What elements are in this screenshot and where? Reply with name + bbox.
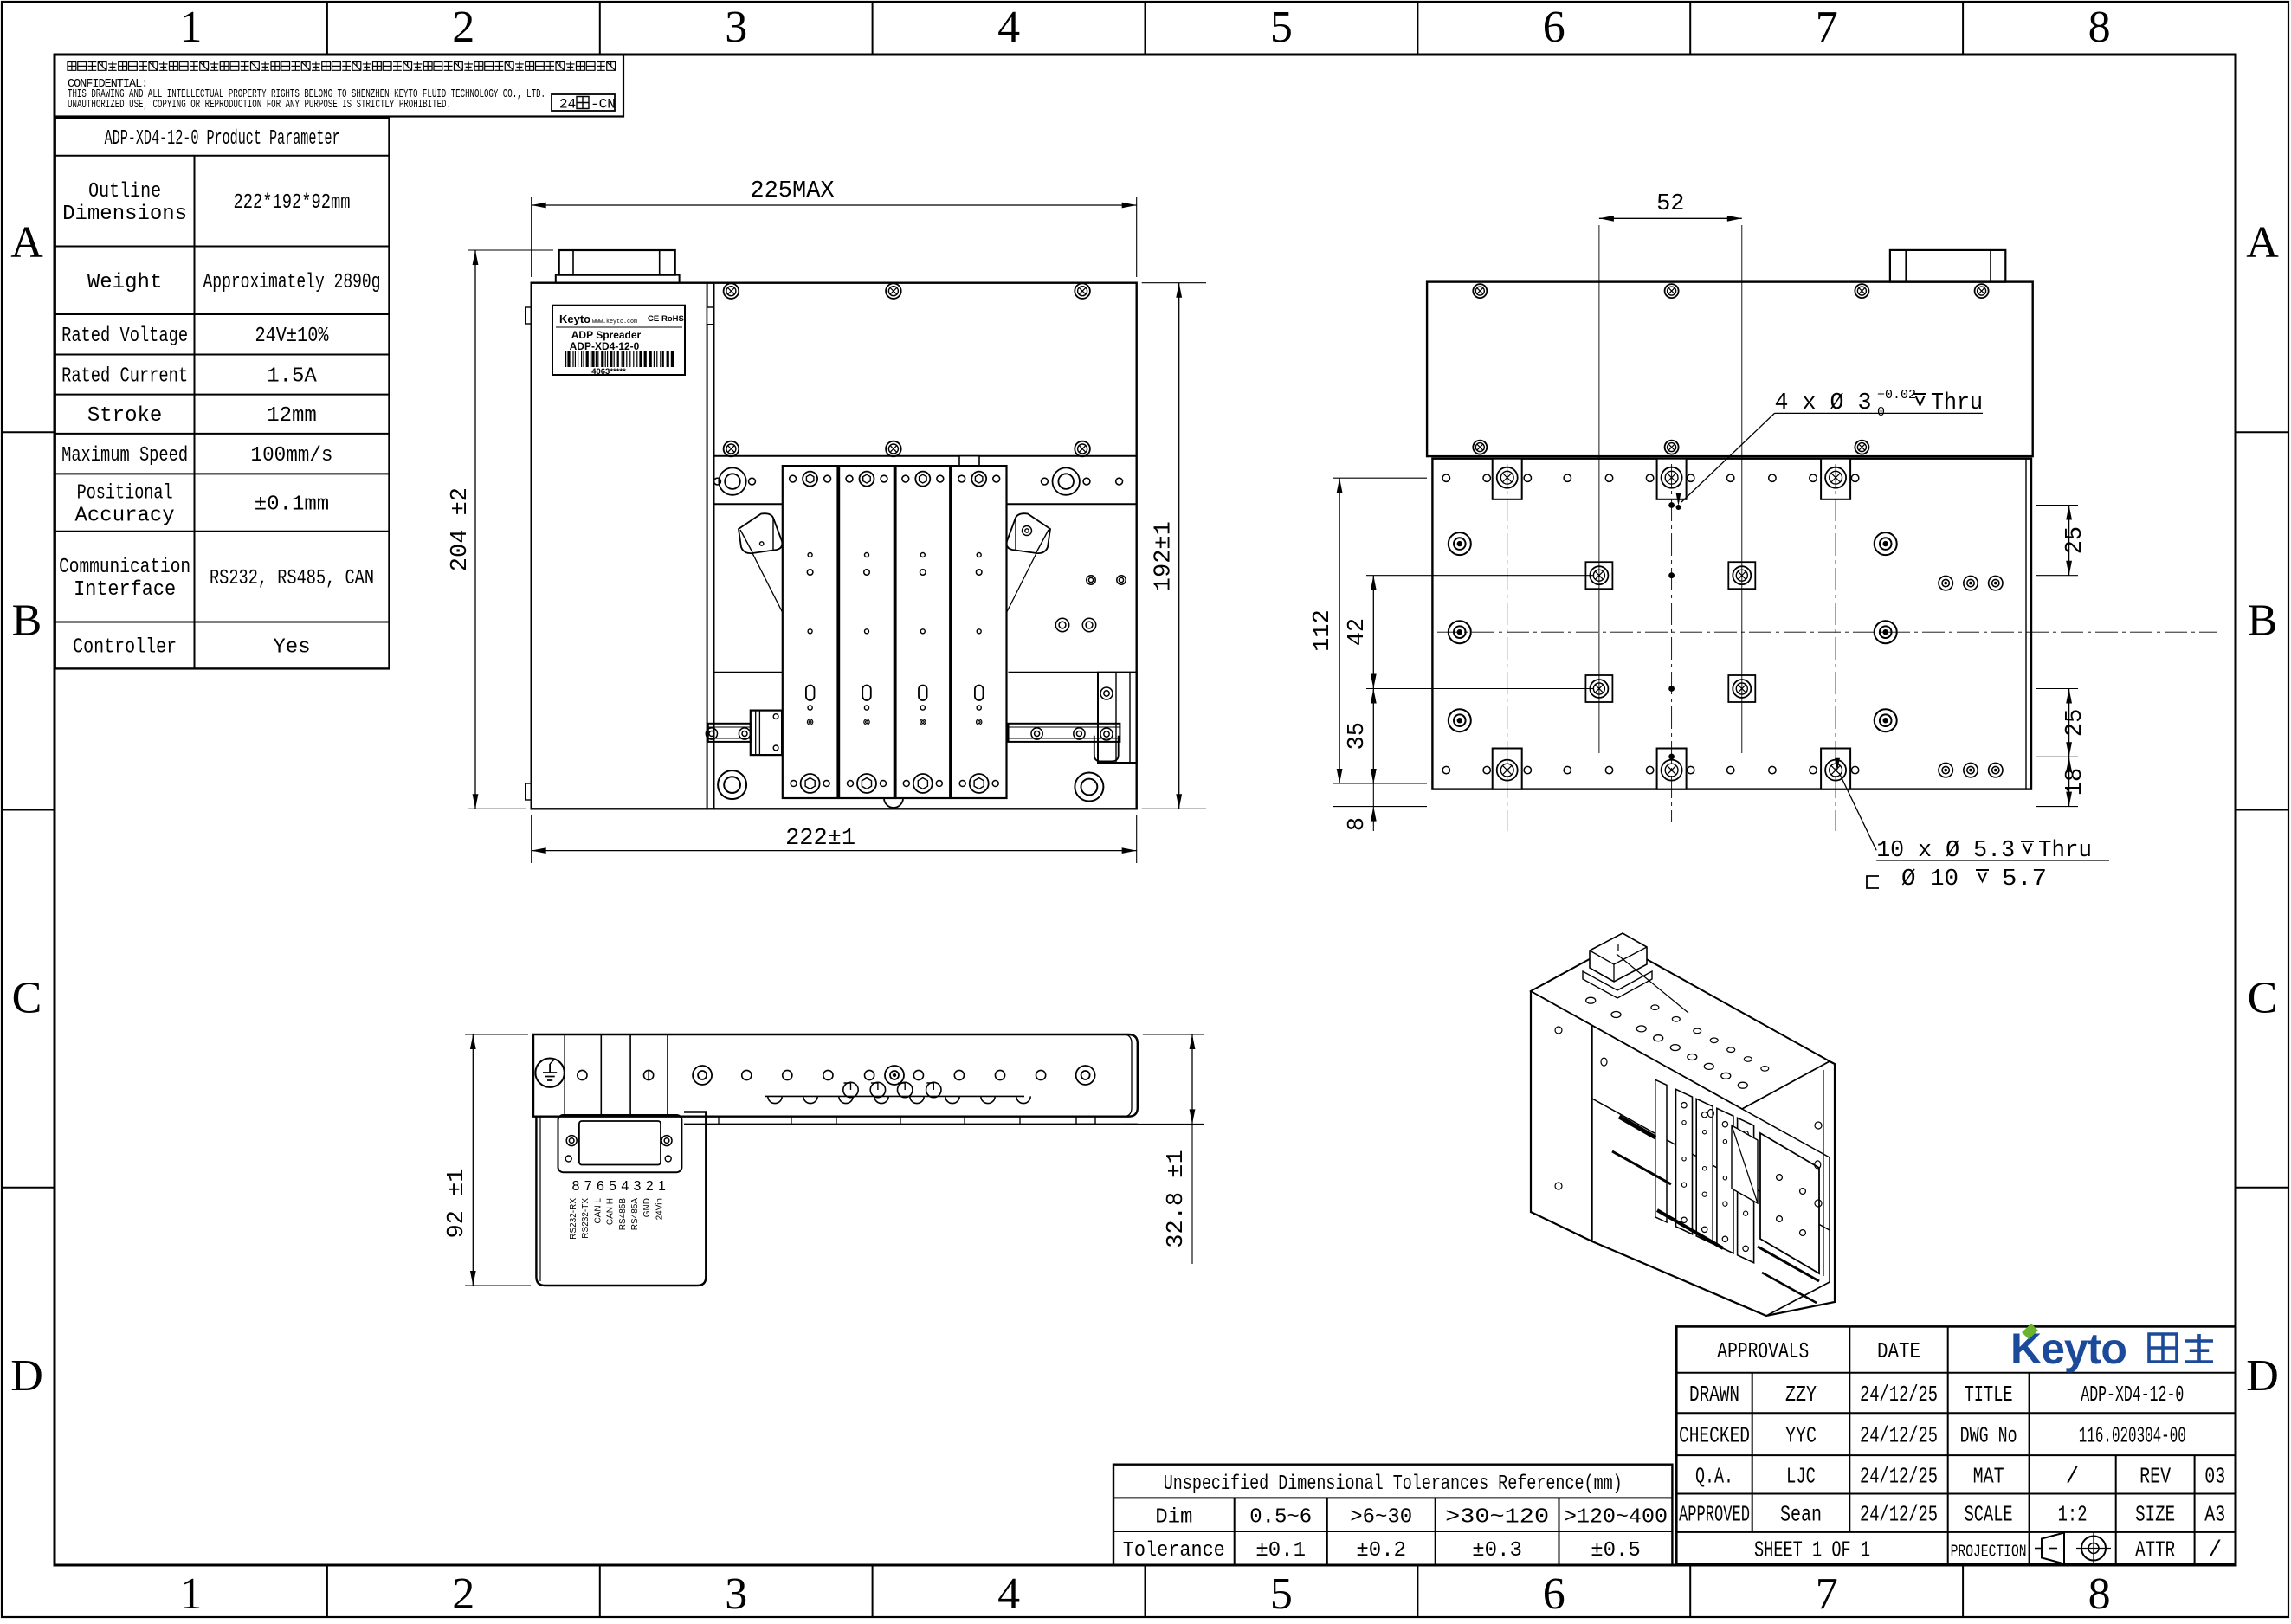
svg-text:52: 52 — [1656, 191, 1684, 217]
svg-text:6: 6 — [1543, 3, 1565, 52]
svg-text:24/12/25: 24/12/25 — [1860, 1382, 1938, 1408]
svg-text:/: / — [2208, 1537, 2222, 1563]
svg-text:Maximum Speed: Maximum Speed — [61, 444, 188, 467]
svg-text:CE: CE — [648, 314, 659, 324]
svg-text:3: 3 — [725, 3, 747, 52]
svg-text:4: 4 — [621, 1179, 629, 1194]
svg-text:-CN: -CN — [590, 97, 616, 113]
svg-text:DWG No: DWG No — [1960, 1423, 2017, 1449]
svg-text:ATTR: ATTR — [2135, 1537, 2175, 1563]
svg-text:92 ±1: 92 ±1 — [444, 1168, 470, 1238]
svg-text:0: 0 — [1877, 405, 1885, 420]
svg-text:24Vin: 24Vin — [655, 1198, 664, 1220]
svg-text:Rated Voltage: Rated Voltage — [61, 325, 188, 348]
svg-text:1:2: 1:2 — [2058, 1502, 2088, 1528]
svg-text:8: 8 — [2088, 1569, 2111, 1619]
svg-text:192±1: 192±1 — [1152, 521, 1178, 591]
svg-text:1: 1 — [179, 3, 202, 52]
svg-text:RS232-TX: RS232-TX — [581, 1198, 590, 1239]
svg-text:5.7: 5.7 — [2002, 867, 2047, 893]
svg-text:RS232-RX: RS232-RX — [569, 1198, 578, 1240]
svg-text:2: 2 — [452, 3, 474, 52]
svg-text:APPROVED: APPROVED — [1679, 1502, 1750, 1528]
svg-text:Rated Current: Rated Current — [61, 365, 188, 389]
svg-text:±0.1: ±0.1 — [1255, 1539, 1306, 1563]
svg-text:Communication: Communication — [59, 556, 190, 579]
svg-text:TITLE: TITLE — [1965, 1382, 2013, 1408]
svg-text:116.020304-00: 116.020304-00 — [2079, 1423, 2186, 1449]
svg-text:SIZE: SIZE — [2135, 1502, 2175, 1528]
svg-text:ZZY: ZZY — [1785, 1382, 1817, 1408]
svg-text:B: B — [2248, 596, 2278, 645]
svg-text:Unspecified Dimensional Tolera: Unspecified Dimensional Tolerances Refer… — [1164, 1473, 1623, 1496]
svg-text:5: 5 — [609, 1179, 616, 1194]
svg-text:Interface: Interface — [74, 578, 176, 602]
svg-text:12mm: 12mm — [267, 404, 317, 428]
svg-text:>6~30: >6~30 — [1350, 1506, 1412, 1530]
svg-text:4063*****: 4063***** — [591, 367, 626, 377]
svg-text:CAN H: CAN H — [606, 1198, 616, 1225]
svg-text:Dim: Dim — [1155, 1506, 1192, 1530]
svg-text:4: 4 — [997, 1569, 1020, 1619]
svg-text:A: A — [2246, 218, 2279, 267]
svg-text:A3: A3 — [2204, 1502, 2225, 1528]
svg-text:Keyto: Keyto — [559, 313, 590, 325]
svg-text:25: 25 — [2062, 526, 2088, 554]
svg-text:Tolerance: Tolerance — [1123, 1539, 1225, 1563]
svg-text:>120~400: >120~400 — [1564, 1506, 1668, 1530]
svg-text:SHEET 1 OF 1: SHEET 1 OF 1 — [1754, 1537, 1870, 1563]
svg-text:2: 2 — [646, 1179, 654, 1194]
svg-text:RS485A: RS485A — [630, 1198, 640, 1231]
svg-text:LJC: LJC — [1786, 1463, 1816, 1489]
svg-text:RS232, RS485, CAN: RS232, RS485, CAN — [210, 567, 374, 590]
svg-text:www.keyto.com: www.keyto.com — [592, 319, 637, 325]
svg-text:204 ±2: 204 ±2 — [448, 487, 474, 571]
svg-text:D: D — [2246, 1351, 2279, 1401]
svg-text:ADP-XD4-12-0 Product Parameter: ADP-XD4-12-0 Product Parameter — [105, 127, 340, 151]
svg-text:Sean: Sean — [1780, 1502, 1822, 1528]
svg-text:3: 3 — [725, 1569, 747, 1619]
svg-text:8: 8 — [2088, 3, 2111, 52]
svg-text:Yes: Yes — [273, 636, 310, 660]
svg-text:222±1: 222±1 — [785, 826, 855, 852]
svg-text:Approximately 2890g: Approximately 2890g — [203, 271, 381, 294]
svg-text:8: 8 — [572, 1179, 580, 1194]
svg-text:REV: REV — [2139, 1463, 2171, 1489]
svg-text:24/12/25: 24/12/25 — [1860, 1423, 1938, 1449]
svg-text:Stroke: Stroke — [87, 404, 162, 428]
svg-text:GND: GND — [642, 1198, 652, 1217]
svg-text:03: 03 — [2204, 1463, 2225, 1489]
svg-text:1: 1 — [179, 1569, 202, 1619]
svg-text:35: 35 — [1345, 722, 1371, 750]
svg-text:±0.1mm: ±0.1mm — [255, 493, 329, 517]
svg-text:Weight: Weight — [87, 271, 162, 294]
svg-text:5: 5 — [1270, 3, 1293, 52]
svg-text:7: 7 — [1816, 1569, 1838, 1619]
svg-text:25: 25 — [2062, 709, 2088, 737]
svg-text:RoHS: RoHS — [661, 314, 684, 324]
svg-text:222*192*92mm: 222*192*92mm — [234, 191, 351, 215]
svg-text:C: C — [12, 974, 42, 1023]
svg-text:18: 18 — [2062, 768, 2088, 796]
svg-text:4: 4 — [997, 3, 1020, 52]
svg-text:>30~120: >30~120 — [1445, 1506, 1549, 1530]
svg-text:APPROVALS: APPROVALS — [1717, 1338, 1809, 1364]
svg-text:32.8 ±1: 32.8 ±1 — [1164, 1150, 1190, 1247]
svg-text:YYC: YYC — [1785, 1423, 1817, 1449]
svg-text:1.5A: 1.5A — [267, 365, 317, 389]
svg-text:24V±10%: 24V±10% — [255, 325, 329, 348]
svg-text:Controller: Controller — [73, 636, 177, 660]
svg-text:PROJECTION: PROJECTION — [1951, 1543, 2027, 1562]
svg-text:3: 3 — [634, 1179, 642, 1194]
svg-text:CHECKED: CHECKED — [1679, 1423, 1750, 1449]
svg-text:Dimensions: Dimensions — [62, 203, 187, 226]
svg-text:0.5~6: 0.5~6 — [1249, 1506, 1312, 1530]
svg-text:1: 1 — [658, 1179, 666, 1194]
svg-text:112: 112 — [1310, 609, 1336, 652]
svg-text:6: 6 — [597, 1179, 604, 1194]
svg-text:+0.02: +0.02 — [1877, 388, 1916, 403]
svg-text:DATE: DATE — [1877, 1338, 1920, 1364]
svg-text:±0.5: ±0.5 — [1591, 1539, 1641, 1563]
svg-text:24/12/25: 24/12/25 — [1860, 1463, 1938, 1489]
svg-text:A: A — [10, 218, 43, 267]
svg-text:Thru: Thru — [1931, 390, 1983, 416]
svg-text:C: C — [2248, 974, 2278, 1023]
svg-text:MAT: MAT — [1973, 1463, 2004, 1489]
svg-text:100mm/s: 100mm/s — [251, 444, 333, 467]
svg-text:Outline: Outline — [88, 180, 161, 203]
svg-text:ADP Spreader: ADP Spreader — [571, 329, 642, 341]
svg-text:2: 2 — [452, 1569, 474, 1619]
svg-text:DRAWN: DRAWN — [1689, 1382, 1739, 1408]
svg-text:ADP-XD4-12-0: ADP-XD4-12-0 — [2081, 1382, 2184, 1408]
svg-text:Q.A.: Q.A. — [1695, 1463, 1733, 1489]
svg-text:D: D — [10, 1351, 43, 1401]
svg-text:4 x Ø 3: 4 x Ø 3 — [1775, 390, 1872, 416]
svg-text:7: 7 — [584, 1179, 592, 1194]
svg-text:Accuracy: Accuracy — [74, 505, 174, 528]
svg-text:CAN L: CAN L — [593, 1198, 603, 1224]
svg-text:6: 6 — [1543, 1569, 1565, 1619]
svg-text:Ø 10: Ø 10 — [1901, 867, 1959, 893]
svg-text:SCALE: SCALE — [1965, 1502, 2013, 1528]
svg-text:ADP-XD4-12-0: ADP-XD4-12-0 — [570, 340, 640, 352]
svg-text:/: / — [2066, 1463, 2080, 1489]
svg-text:8: 8 — [1345, 817, 1371, 831]
svg-text:±0.2: ±0.2 — [1356, 1539, 1406, 1563]
svg-text:42: 42 — [1345, 618, 1371, 646]
svg-text:7: 7 — [1816, 3, 1838, 52]
svg-text:B: B — [12, 596, 42, 645]
svg-text:5: 5 — [1270, 1569, 1293, 1619]
svg-text:225MAX: 225MAX — [750, 178, 834, 204]
svg-text:RS485B: RS485B — [618, 1198, 628, 1231]
svg-text:24/12/25: 24/12/25 — [1860, 1502, 1938, 1528]
svg-text:±0.3: ±0.3 — [1472, 1539, 1522, 1563]
svg-text:UNAUTHORIZED USE, COPYING OR R: UNAUTHORIZED USE, COPYING OR REPRODUCTIO… — [68, 99, 451, 112]
svg-text:24: 24 — [559, 97, 576, 113]
svg-text:Positional: Positional — [77, 482, 173, 506]
